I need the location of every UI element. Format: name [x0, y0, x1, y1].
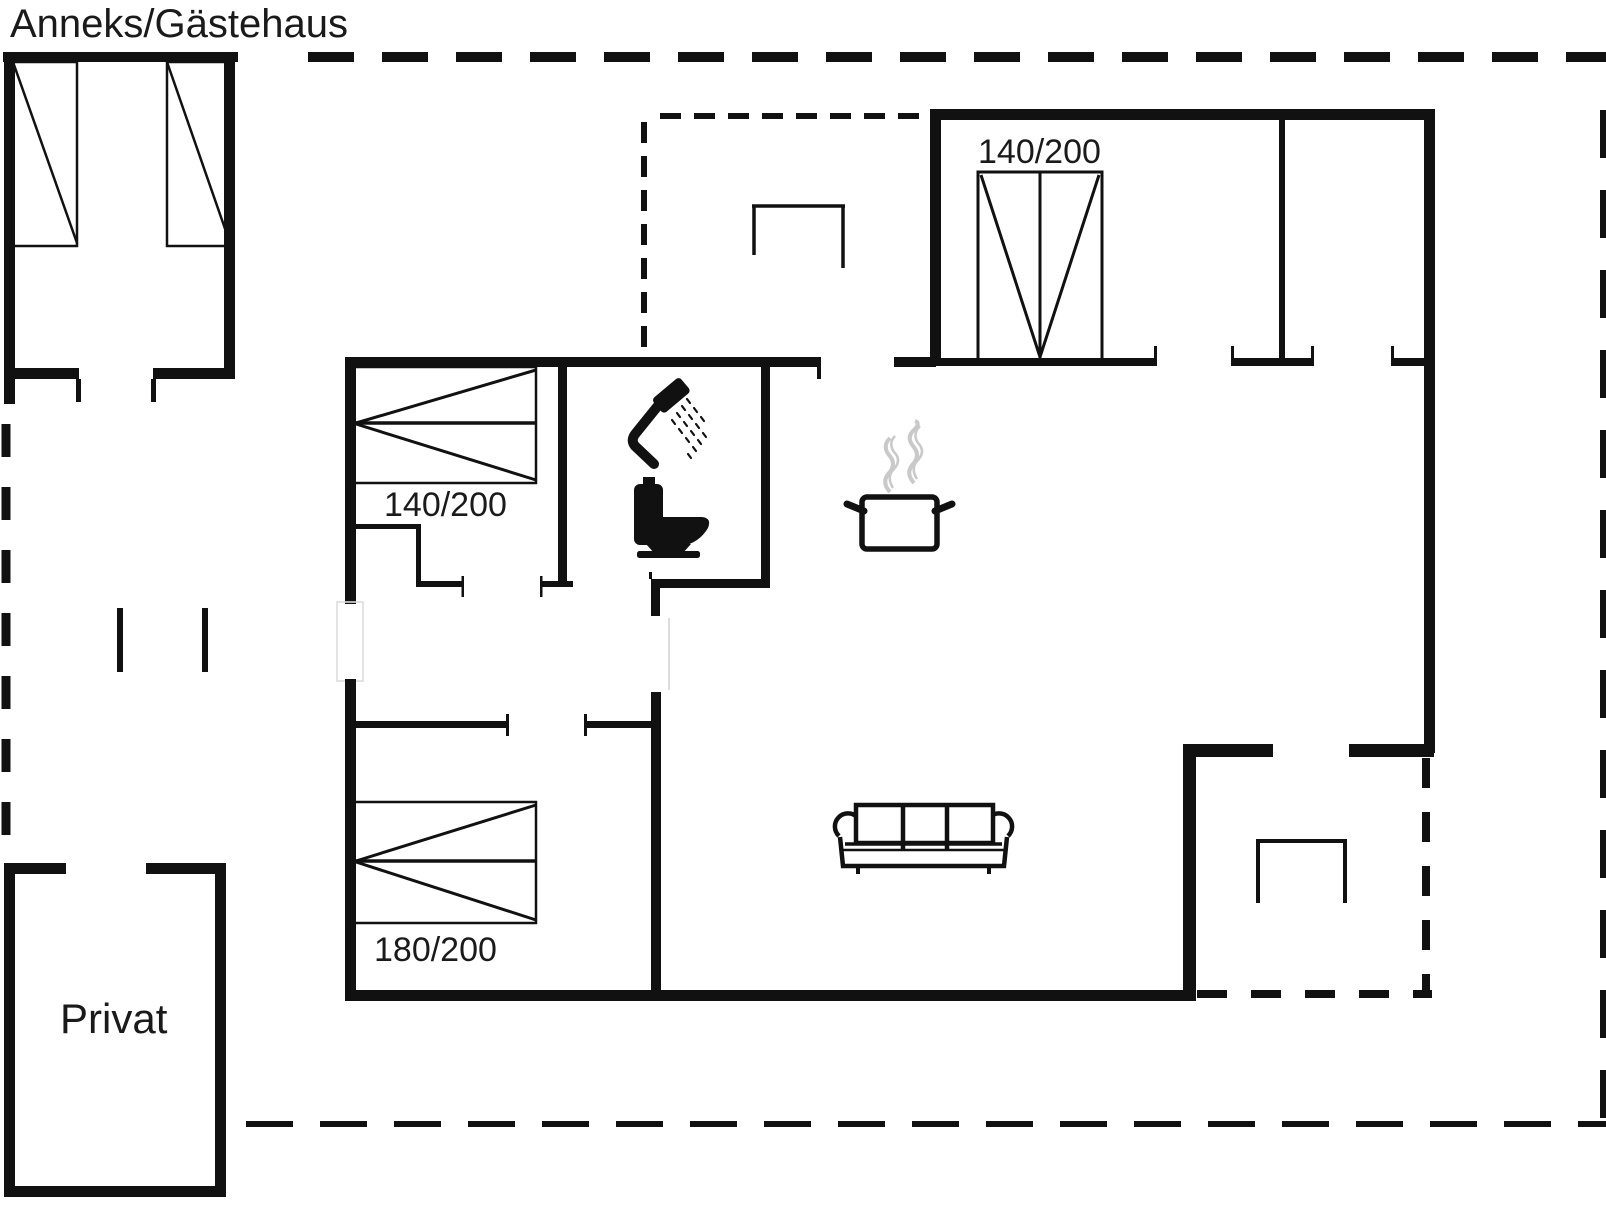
- svg-text:180/200: 180/200: [374, 931, 497, 969]
- svg-text:140/200: 140/200: [978, 133, 1101, 171]
- svg-text:Anneks/Gästehaus: Anneks/Gästehaus: [10, 2, 348, 46]
- svg-text:140/200: 140/200: [384, 486, 507, 524]
- svg-text:Privat: Privat: [60, 995, 168, 1042]
